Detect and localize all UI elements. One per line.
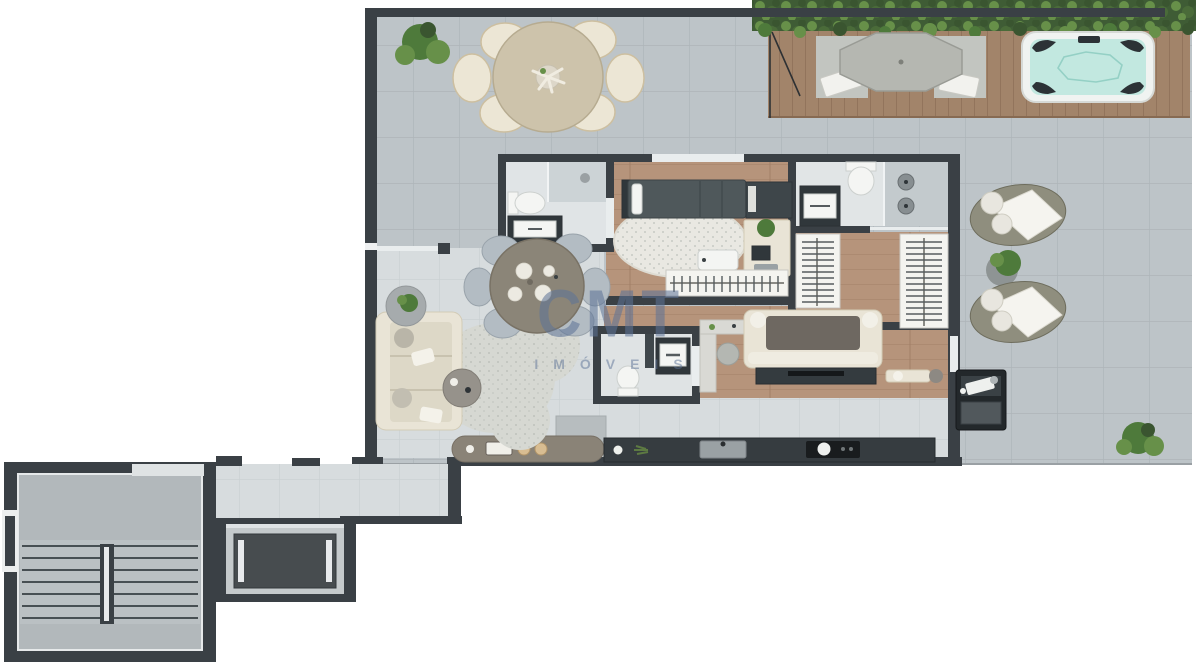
- corridor-floor: [216, 464, 450, 518]
- umbrella-pole: [899, 60, 904, 65]
- faucet: [721, 442, 726, 447]
- bath1-door: [606, 198, 614, 238]
- sofa-pillow: [392, 388, 412, 408]
- shower-head-icon: [580, 173, 590, 183]
- shower-glass-line: [870, 227, 948, 230]
- toilet: [617, 366, 639, 390]
- sofa-pillow: [394, 328, 414, 348]
- wc-door: [692, 346, 700, 386]
- bathroom-1: [506, 162, 606, 244]
- bedroom-plant: [757, 219, 775, 237]
- tv: [788, 371, 844, 376]
- toilet: [515, 192, 545, 214]
- sofa-throw: [766, 316, 860, 350]
- wc-door-panel: [645, 334, 654, 368]
- shower: [548, 162, 606, 202]
- floor-plan-stage: CMT IMÓVEIS: [0, 0, 1200, 672]
- bed: [628, 180, 746, 218]
- elevator: [214, 518, 356, 602]
- elevator-rail-right: [326, 540, 332, 582]
- stair-side-door: [5, 516, 15, 566]
- indoor-dining-table: [490, 239, 584, 333]
- terrace-door: [950, 336, 958, 372]
- main-unit: [352, 0, 1196, 466]
- wc: [601, 334, 692, 396]
- patio-umbrella-set: [816, 33, 986, 98]
- coffee-table: [443, 369, 481, 407]
- elevator-car: [234, 534, 336, 588]
- wall-top: [365, 8, 1165, 17]
- bathroom-2: [796, 162, 948, 226]
- pillow: [632, 184, 642, 214]
- side-table: [929, 369, 943, 383]
- hot-tub: [1022, 32, 1154, 102]
- double-shower: [884, 162, 948, 226]
- stool: [752, 246, 770, 260]
- wall-left: [365, 8, 377, 457]
- outdoor-grill: [956, 370, 1006, 430]
- annex: [2, 456, 462, 662]
- tub-control-panel: [1078, 36, 1100, 43]
- window-bench: [886, 370, 930, 382]
- stair-opening: [132, 464, 204, 476]
- dish: [614, 446, 623, 455]
- elevator-door-line: [226, 524, 344, 528]
- desk-chair: [717, 343, 739, 365]
- lounge-window: [377, 246, 441, 251]
- outdoor-dining-set: [453, 21, 644, 132]
- kitchen-counter: [604, 438, 935, 462]
- floor-plan-drawing: [0, 0, 1200, 672]
- elevator-rail-left: [238, 540, 244, 582]
- bedroom-window: [648, 154, 748, 162]
- staircase-block: [2, 462, 216, 662]
- toilet: [848, 167, 874, 195]
- corridor: [216, 456, 462, 524]
